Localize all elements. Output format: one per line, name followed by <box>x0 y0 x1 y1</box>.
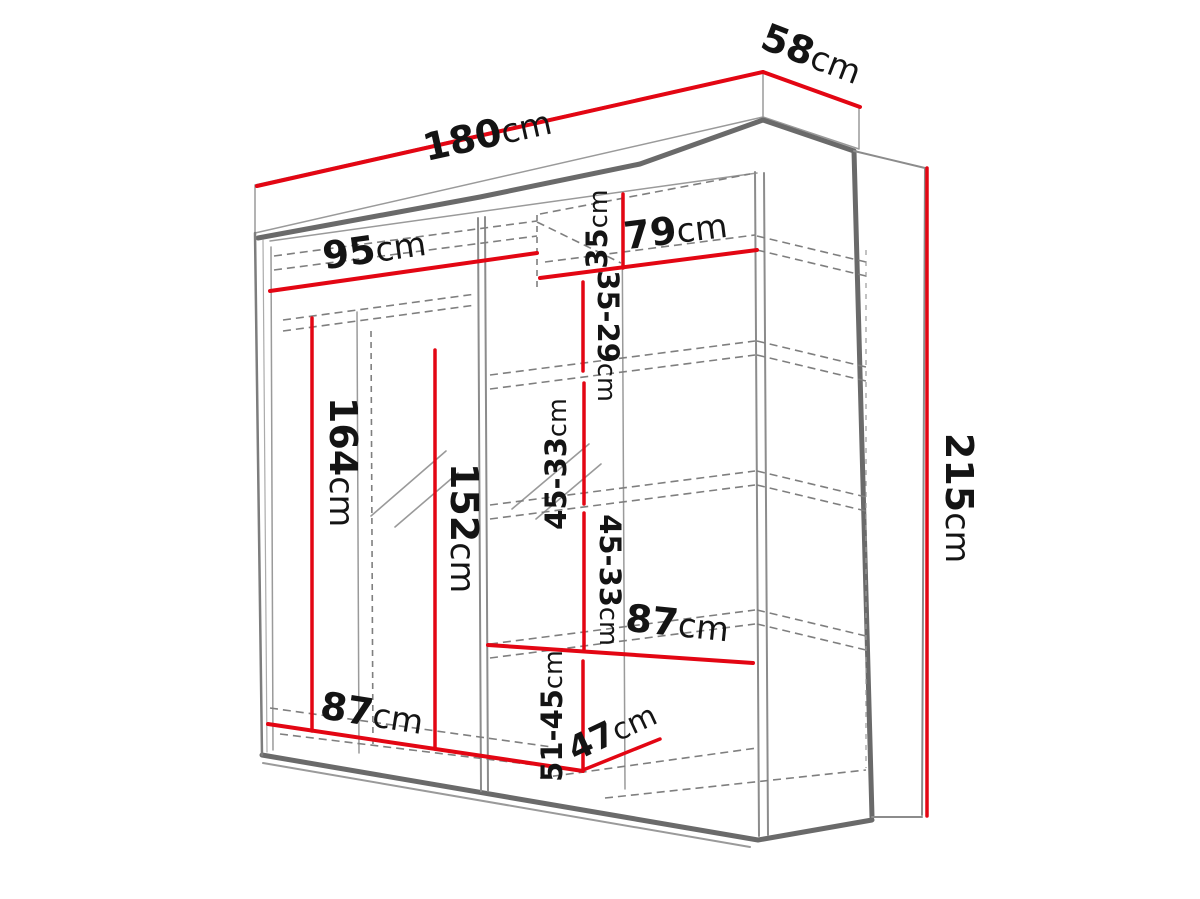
top-slab <box>255 71 859 233</box>
dim-label-top-shelf-height: 35cm <box>580 189 614 268</box>
dim-label-left-interior-height: 164cm <box>321 397 365 527</box>
dim-label-shelf-gap-1: 35-29cm <box>591 270 625 402</box>
left-wall-inner-edge <box>271 247 273 750</box>
diagram-canvas: 180cm 58cm 215cm 95cm 79cm 164cm 152cm 8… <box>0 0 1200 899</box>
carcass-right-front-edge <box>854 151 872 817</box>
right-partition-back <box>764 173 768 835</box>
right-partition-front <box>755 172 759 836</box>
side-panel-back-edge <box>922 168 925 815</box>
dim-label-shelf-gap-2: 45-33cm <box>539 398 573 530</box>
dim-label-right-shelf-width: 87cm <box>623 596 731 651</box>
dim-label-right-section-width: 79cm <box>621 202 729 258</box>
dim-label-mirror-height: 152cm <box>442 463 486 593</box>
left-wall-face-line <box>263 240 267 752</box>
hanging-rail-dashed <box>371 331 373 748</box>
dim-label-overall-height: 215cm <box>937 433 981 563</box>
side-panel-top-edge <box>854 151 925 168</box>
carcass-bottom-edge-inner <box>263 763 750 847</box>
left-outer-edge <box>255 233 262 755</box>
dim-label-bottom-shelf-height: 51-45cm <box>535 650 569 782</box>
wardrobe-diagram: 180cm 58cm 215cm 95cm 79cm 164cm 152cm 8… <box>0 0 1200 899</box>
left-door-edge <box>357 312 359 753</box>
dim-label-shelf-gap-3: 45-33cm <box>593 514 627 646</box>
